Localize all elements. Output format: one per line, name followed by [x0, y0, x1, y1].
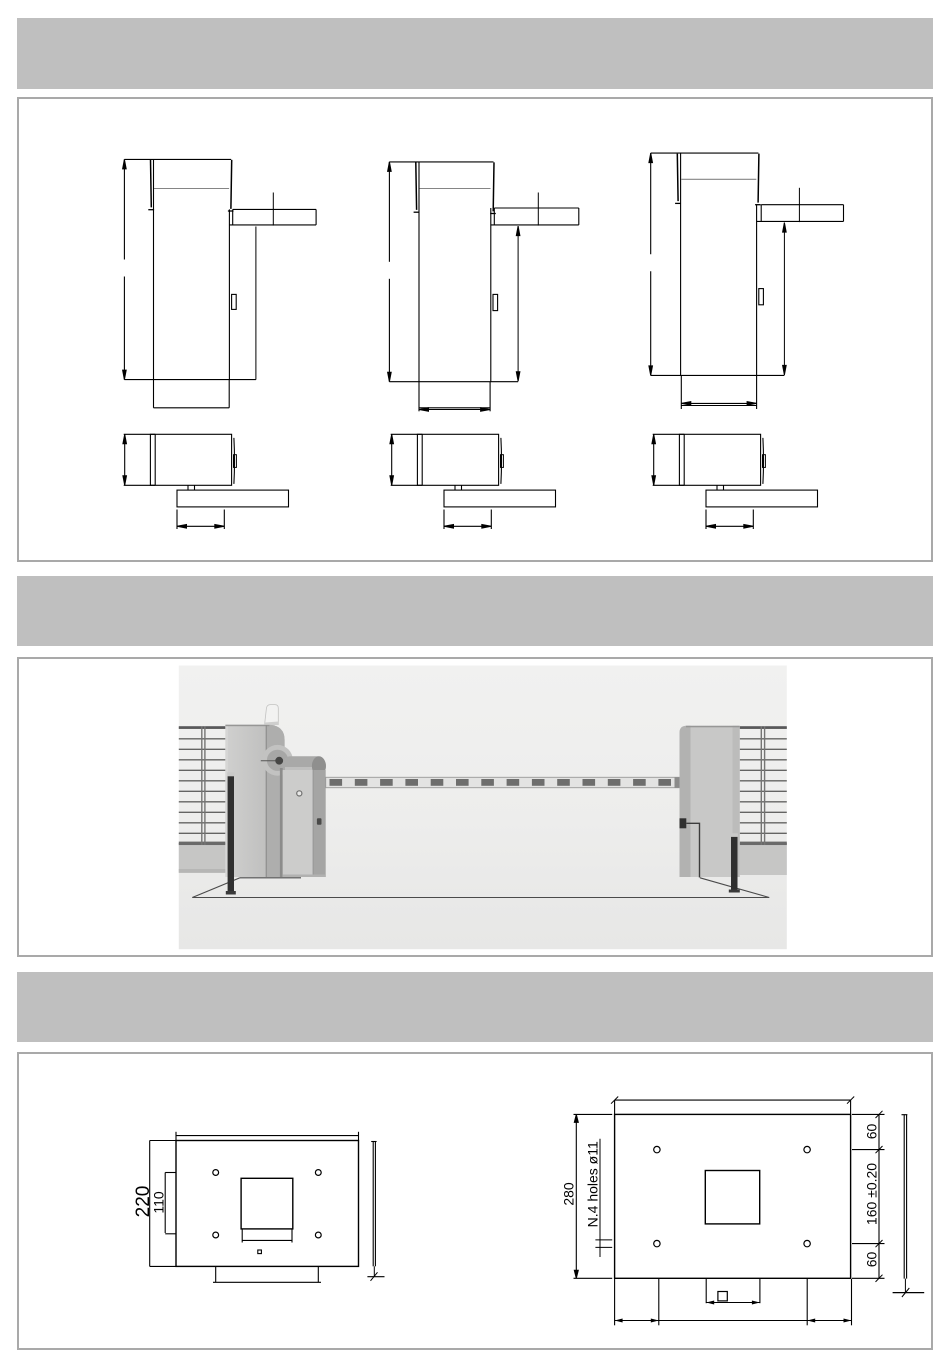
svg-text:60: 60	[864, 1124, 880, 1140]
svg-text:110: 110	[151, 1191, 167, 1214]
svg-text:160 ±0.20: 160 ±0.20	[864, 1163, 880, 1225]
svg-text:280: 280	[560, 1182, 576, 1206]
svg-text:N.4 holes ø11: N.4 holes ø11	[584, 1141, 600, 1227]
svg-text:60: 60	[864, 1252, 880, 1268]
